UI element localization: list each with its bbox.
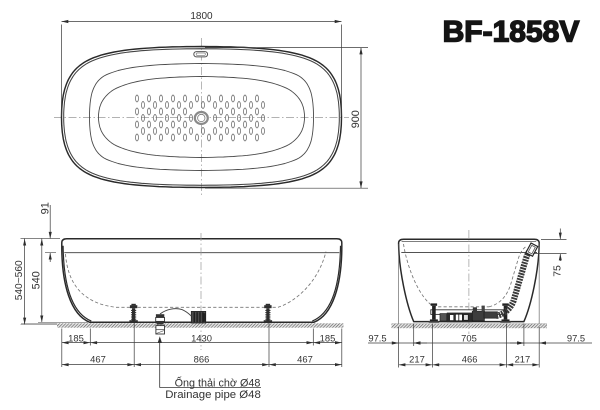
- svg-text:75: 75: [553, 265, 564, 277]
- svg-text:540~560: 540~560: [14, 260, 25, 300]
- svg-text:185: 185: [68, 332, 84, 343]
- svg-text:185: 185: [320, 332, 336, 343]
- svg-text:Ống thải chờ Ø48: Ống thải chờ Ø48: [175, 376, 261, 390]
- svg-text:217: 217: [409, 353, 425, 364]
- svg-text:705: 705: [461, 332, 477, 343]
- svg-text:466: 466: [462, 353, 478, 364]
- svg-text:866: 866: [194, 353, 210, 364]
- svg-text:217: 217: [515, 353, 531, 364]
- svg-text:97.5: 97.5: [567, 332, 585, 343]
- svg-text:97.5: 97.5: [368, 332, 386, 343]
- svg-text:BF-1858V: BF-1858V: [443, 16, 580, 49]
- svg-text:Drainage pipe Ø48: Drainage pipe Ø48: [165, 389, 261, 401]
- svg-text:467: 467: [90, 353, 106, 364]
- svg-text:900: 900: [350, 110, 362, 128]
- svg-text:540: 540: [31, 271, 43, 289]
- svg-text:467: 467: [297, 353, 313, 364]
- svg-text:1430: 1430: [191, 332, 212, 343]
- svg-text:91: 91: [39, 202, 51, 214]
- svg-text:1800: 1800: [190, 11, 213, 22]
